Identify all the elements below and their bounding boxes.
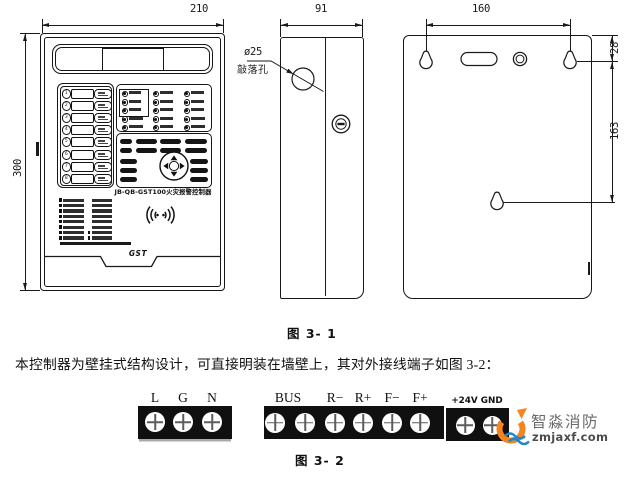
led-label-bar — [160, 117, 173, 120]
keypad-button — [120, 168, 138, 173]
legend-text-bar — [63, 204, 84, 207]
legend-text-bar — [63, 231, 84, 234]
dim-extension-line — [592, 35, 618, 36]
led-label-bar — [129, 108, 141, 111]
micro-text-bar — [98, 140, 105, 142]
keypad-button — [190, 168, 208, 173]
dim-arrow — [610, 195, 614, 202]
zone-button — [94, 113, 112, 123]
hinge-mark — [36, 142, 39, 156]
terminal-screw — [410, 413, 430, 433]
legend-text-bar — [63, 209, 84, 212]
led-indicator — [184, 99, 191, 106]
terminal-screw — [173, 412, 193, 432]
zone-label-window — [71, 101, 94, 111]
legend-text-bar — [92, 236, 112, 239]
terminal-label-R-plus: R+ — [348, 390, 378, 406]
dim-arrow — [563, 23, 570, 27]
terminal-block-signal — [264, 406, 444, 439]
manual-page: 210 300 1 2 3 4 5 6 7 8 — [0, 0, 625, 477]
dim-arrow — [281, 23, 288, 27]
terminal-screw — [202, 412, 222, 432]
zone-button — [94, 174, 112, 184]
back-view-enclosure — [403, 35, 592, 299]
dim-line-hole-span — [426, 25, 570, 26]
zone-label-window — [71, 125, 94, 135]
led-indicator — [184, 116, 191, 123]
micro-text-bar — [98, 131, 109, 133]
figure1-caption: 图 3- 1 — [287, 323, 337, 342]
figure2-caption: 图 3- 2 — [295, 450, 345, 469]
led-indicator — [153, 99, 160, 106]
dim-arrow — [426, 23, 433, 27]
front-height-dim-label: 300 — [12, 153, 24, 183]
micro-text-bar — [98, 143, 109, 145]
led-indicator — [122, 108, 129, 115]
led-indicator — [122, 125, 129, 132]
dim-arrow — [610, 62, 614, 69]
legend-bullet — [88, 231, 90, 235]
legend-bullet — [59, 220, 62, 224]
led-indicator — [153, 116, 160, 123]
micro-text-bar — [98, 116, 105, 118]
terminal-screw — [145, 412, 165, 432]
watermark-site-text: zmjaxf.com — [532, 430, 608, 444]
keypad-button — [120, 159, 138, 164]
keypad-button — [190, 159, 208, 164]
led-label-bar — [191, 91, 204, 94]
led-indicator — [184, 91, 191, 98]
zone-label-window — [71, 150, 94, 160]
top-offset-dim-label: 28 — [609, 37, 621, 59]
micro-text-bar — [98, 180, 109, 182]
micro-text-bar — [98, 128, 105, 130]
legend-divider-bar — [60, 242, 131, 246]
zone-label-window — [71, 113, 94, 123]
terminal-label-BUS: BUS — [272, 390, 304, 406]
led-indicator — [184, 108, 191, 115]
legend-text-bar — [63, 215, 84, 218]
terminal-label-G: G — [168, 390, 198, 406]
legend-text-bar — [92, 226, 112, 229]
micro-text-bar — [98, 177, 105, 179]
dim-line-front-height — [25, 34, 26, 290]
terminal-label-R-minus: R− — [320, 390, 350, 406]
back-edge-notch — [588, 262, 590, 275]
legend-bullet — [59, 225, 62, 229]
zone-button — [94, 125, 112, 135]
legend-text-bar — [63, 220, 84, 223]
keypad-button — [160, 139, 181, 144]
micro-text-bar — [98, 168, 109, 170]
zone-number-circle: 1 — [62, 89, 72, 99]
terminal-block-power — [138, 406, 232, 439]
zone-number: 5 — [65, 139, 68, 144]
led-indicator — [184, 125, 191, 132]
micro-text-bar — [98, 95, 109, 97]
led-label-bar — [191, 100, 204, 103]
led-label-bar — [129, 91, 141, 94]
led-label-bar — [129, 125, 143, 128]
legend-bullet — [59, 198, 62, 202]
side-view-enclosure — [280, 37, 364, 299]
side-width-dim-label: 91 — [306, 3, 336, 15]
zone-button — [94, 162, 112, 172]
terminal-label-L: L — [140, 390, 170, 406]
led-label-bar — [160, 91, 173, 94]
dim-arrow — [355, 23, 362, 27]
dim-arrow — [42, 23, 49, 27]
legend-text-bar — [92, 231, 112, 234]
led-indicator — [122, 116, 129, 123]
terminal-screw — [295, 413, 315, 433]
legend-text-bar — [92, 199, 112, 202]
legend-bullet — [59, 215, 62, 219]
micro-text-bar — [98, 156, 109, 158]
micro-text-bar — [98, 107, 109, 109]
led-indicator — [153, 91, 160, 98]
zone-number-circle: 4 — [62, 125, 72, 135]
legend-text-bar — [63, 199, 84, 202]
zone-number-circle: 6 — [62, 150, 72, 160]
dim-arrow — [216, 23, 223, 27]
zone-number-circle: 8 — [62, 174, 72, 184]
legend-bullet — [59, 209, 62, 213]
dim-arrow — [23, 283, 27, 290]
terminal-screw — [353, 413, 373, 433]
zone-button — [94, 137, 112, 147]
brand-logo: GST — [119, 249, 157, 258]
zone-label-window — [71, 89, 94, 99]
legend-bullet — [88, 236, 90, 240]
zone-number: 6 — [65, 152, 68, 157]
micro-text-bar — [98, 92, 105, 94]
terminal-screw — [265, 413, 285, 433]
micro-text-bar — [98, 165, 105, 167]
zone-number: 1 — [65, 91, 68, 96]
led-label-bar — [191, 108, 204, 111]
zone-number: 7 — [65, 164, 68, 169]
hole-span-dim-label: 160 — [464, 3, 498, 15]
zone-number: 3 — [65, 115, 68, 120]
led-label-bar — [129, 100, 141, 103]
keypad-button — [136, 148, 157, 153]
led-label-bar — [129, 117, 143, 120]
led-indicator — [153, 108, 160, 115]
zone-number-circle: 7 — [62, 162, 72, 172]
led-indicator — [122, 91, 129, 98]
zone-number: 4 — [65, 127, 68, 132]
model-label: JB-QB-GST100火灾报警控制器 — [103, 187, 223, 196]
zone-label-window — [71, 174, 94, 184]
watermark-brand-text: 智淼消防 — [531, 410, 599, 432]
zone-button — [94, 101, 112, 111]
legend-text-bar — [92, 220, 112, 223]
micro-text-bar — [98, 119, 109, 121]
led-indicator — [153, 125, 160, 132]
mid-spacing-dim-label: 163 — [609, 117, 621, 145]
lcd-screen — [102, 48, 164, 71]
zone-label-window — [71, 162, 94, 172]
zone-number-circle: 3 — [62, 113, 72, 123]
keypad-button — [190, 177, 208, 182]
knockout-name-label: 敲落孔 — [237, 61, 275, 76]
legend-bullet — [59, 236, 62, 240]
dim-arrow — [23, 34, 27, 41]
side-view-door-split-line — [325, 38, 326, 296]
led-label-bar — [160, 108, 173, 111]
front-width-dim-label: 210 — [183, 3, 215, 15]
body-paragraph: 本控制器为壁挂式结构设计，可直接明装在墙壁上，其对外接线端子如图 3-2： — [15, 353, 500, 373]
legend-text-bar — [92, 215, 112, 218]
dim-line-front-width — [42, 25, 223, 26]
led-label-bar — [191, 117, 205, 120]
led-indicator — [122, 99, 129, 106]
legend-text-bar — [92, 204, 112, 207]
zone-label-window — [71, 137, 94, 147]
micro-text-bar — [98, 104, 105, 106]
keypad-button — [160, 148, 181, 153]
led-label-bar — [191, 125, 205, 128]
keypad-button — [120, 177, 138, 182]
knockout-diameter-label: ø25 — [244, 46, 270, 58]
terminal-screw — [456, 416, 475, 435]
zone-number-circle: 5 — [62, 137, 72, 147]
legend-text-bar — [63, 236, 84, 239]
terminal-screw — [382, 413, 402, 433]
keypad-button — [136, 139, 157, 144]
legend-bullet — [59, 204, 62, 208]
terminal-label-N: N — [197, 390, 227, 406]
terminal-label-24v-gnd: +24V GND — [444, 396, 510, 406]
terminal-block-24v — [446, 408, 509, 441]
zone-number-circle: 2 — [62, 101, 72, 111]
terminal-label-F-minus: F− — [377, 390, 407, 406]
terminal-screw — [325, 413, 345, 433]
legend-text-bar — [92, 209, 112, 212]
keypad-button — [120, 139, 132, 144]
zone-button — [94, 150, 112, 160]
zone-number: 2 — [65, 103, 68, 108]
legend-text-bar — [63, 226, 84, 229]
zone-number: 8 — [65, 176, 68, 181]
terminal-screw — [483, 416, 502, 435]
led-label-bar — [160, 100, 173, 103]
led-label-bar — [160, 125, 173, 128]
keypad-button — [120, 148, 132, 153]
zone-button — [94, 89, 112, 99]
keypad-button — [185, 148, 207, 153]
legend-bullet — [59, 231, 62, 235]
dim-line-side-width — [281, 25, 362, 26]
dim-extension-line — [503, 202, 615, 203]
micro-text-bar — [98, 153, 105, 155]
keypad-button — [185, 139, 207, 144]
terminal-label-F-plus: F+ — [405, 390, 435, 406]
dim-extension-line — [362, 19, 363, 37]
